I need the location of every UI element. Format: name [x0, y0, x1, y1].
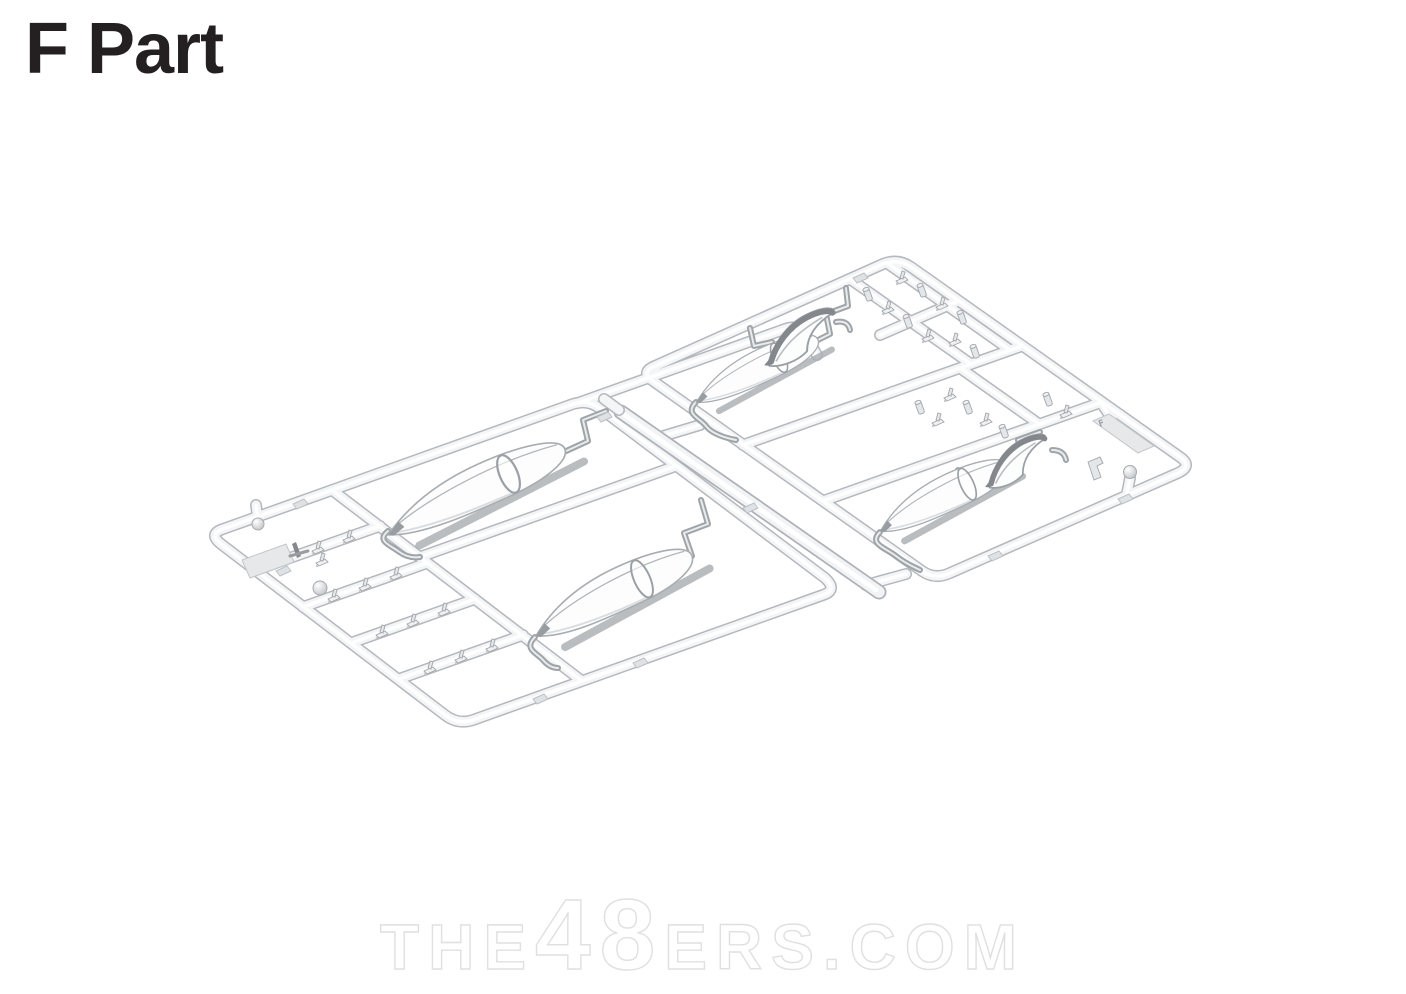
small-part [1042, 392, 1053, 407]
t-bracket-part [1088, 457, 1103, 480]
sprue-render: F [0, 0, 1406, 994]
ball-part [252, 518, 264, 530]
small-part [914, 400, 925, 415]
small-part [949, 333, 961, 347]
ball-part [313, 581, 327, 595]
watermark-prefix: THE [380, 910, 535, 984]
watermark-number: 48 [535, 878, 664, 993]
small-part [962, 400, 973, 415]
small-part [316, 553, 328, 567]
small-part [969, 344, 980, 359]
sprue-illustration: F [0, 0, 1406, 994]
small-part [944, 388, 956, 402]
runner-frames [215, 262, 1186, 722]
watermark-suffix: ERS.COM [664, 910, 1026, 984]
ball-part [1124, 466, 1137, 479]
watermark: THE48ERS.COM [0, 878, 1406, 993]
small-part [932, 413, 944, 427]
small-part [980, 413, 992, 427]
